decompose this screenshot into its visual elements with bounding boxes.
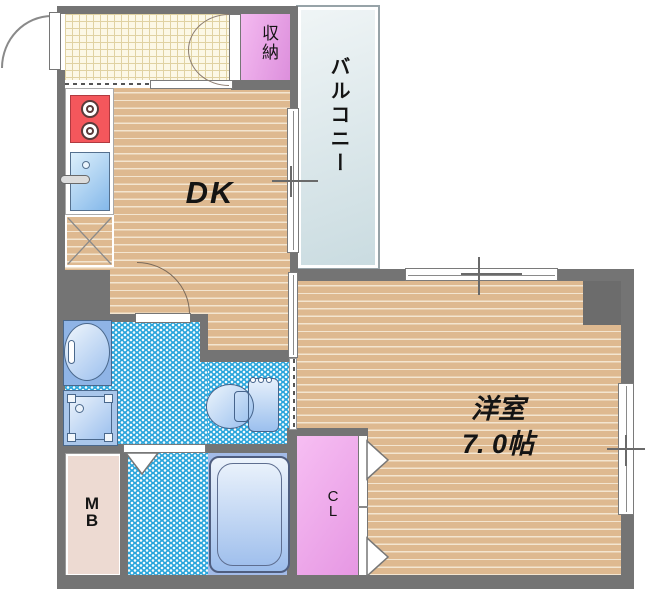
storage-label: 収納 <box>256 24 281 80</box>
stove-burner-icon <box>86 105 94 113</box>
storage-door-panel <box>229 14 241 87</box>
entry-door-arc <box>1 15 52 68</box>
meter-box-label: M B <box>77 495 107 529</box>
wall-segment <box>288 428 368 436</box>
wall-segment <box>290 6 298 108</box>
kitchen-service-block <box>57 270 110 317</box>
vanity-corner <box>104 394 113 403</box>
counter-hatch <box>65 215 114 267</box>
dimension-tick <box>272 180 318 182</box>
balcony-label: バルコニー <box>324 56 353 236</box>
washroom-door-leaf <box>135 313 191 323</box>
wall-segment <box>205 444 297 453</box>
faucet-icon <box>60 175 90 184</box>
toilet-button-icon <box>250 377 256 383</box>
stove-burner-icon <box>86 127 94 135</box>
bathroom-door-triangle <box>124 452 160 477</box>
dk-floor-lower <box>208 315 292 352</box>
bathtub-inner <box>217 463 282 566</box>
washing-machine-handle <box>68 340 75 364</box>
entry-door-leaf <box>49 12 61 70</box>
vanity-corner <box>67 433 76 442</box>
dk-label: DK <box>160 175 260 211</box>
western-room-size: 7. 0帖 <box>400 427 596 462</box>
closet-fold-door-icon <box>366 439 390 482</box>
vanity-faucet-icon <box>75 404 84 413</box>
wall-segment <box>231 80 298 90</box>
wall-segment <box>57 575 634 589</box>
western-room-name: 洋室 <box>400 392 596 427</box>
vanity-corner <box>67 394 76 403</box>
dk-room-opening <box>288 272 298 358</box>
sink-drain-icon <box>82 161 90 169</box>
sliding-door-pocket <box>289 358 297 430</box>
dimension-tick <box>461 273 522 275</box>
western-room-label: 洋室 7. 0帖 <box>400 392 596 462</box>
toilet-button-icon <box>258 377 264 383</box>
dimension-tick <box>290 166 292 197</box>
vanity-corner <box>104 433 113 442</box>
entry-step-strip <box>65 80 150 88</box>
wall-segment <box>57 6 298 14</box>
structural-pillar <box>583 281 621 325</box>
dimension-tick <box>625 435 627 466</box>
wall-segment <box>188 314 208 322</box>
closet-door-divider <box>358 506 368 508</box>
toilet-seat-detail <box>234 391 249 422</box>
toilet-button-icon <box>266 377 272 383</box>
wall-segment <box>200 350 292 362</box>
closet-label: C L <box>316 489 350 519</box>
floorplan: DK 洋室 7. 0帖 バルコニー 収納 C L M B <box>0 0 645 591</box>
closet-fold-door-icon <box>366 536 390 579</box>
dimension-tick <box>478 257 480 295</box>
